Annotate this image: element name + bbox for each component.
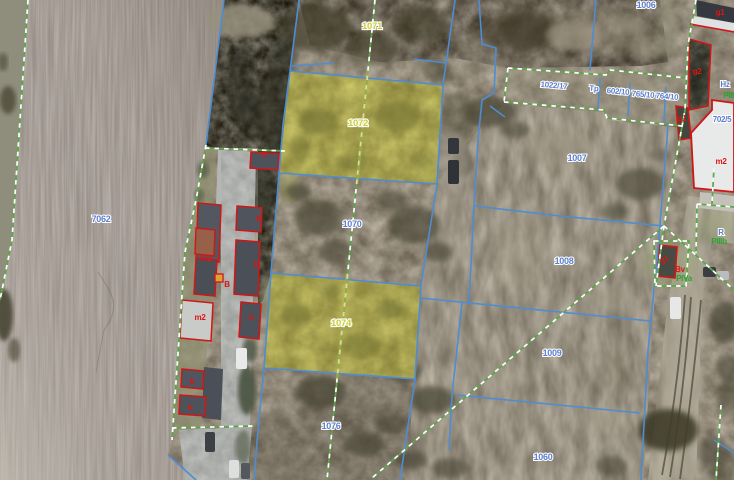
- svg-text:Hz: Hz: [720, 80, 729, 89]
- svg-text:1007: 1007: [568, 153, 587, 163]
- svg-text:1072: 1072: [348, 118, 368, 129]
- svg-text:m2: m2: [195, 313, 207, 322]
- svg-text:m2: m2: [201, 254, 213, 263]
- svg-text:b: b: [249, 313, 254, 322]
- svg-text:1074: 1074: [331, 318, 352, 329]
- svg-text:g1: g1: [678, 114, 688, 123]
- svg-text:7062: 7062: [92, 214, 111, 224]
- svg-text:1070: 1070: [343, 219, 362, 229]
- svg-text:g1: g1: [716, 8, 726, 17]
- svg-text:g2: g2: [693, 67, 703, 76]
- svg-text:b: b: [256, 214, 261, 223]
- svg-text:1071: 1071: [362, 21, 383, 32]
- svg-text:PIIIb: PIIIb: [711, 237, 727, 246]
- svg-text:1060: 1060: [534, 452, 553, 462]
- svg-text:PIVa: PIVa: [676, 274, 693, 283]
- svg-text:Bv: Bv: [675, 265, 685, 274]
- svg-text:B: B: [224, 280, 230, 289]
- svg-text:Tp: Tp: [589, 84, 599, 94]
- svg-text:b: b: [188, 403, 193, 412]
- svg-text:b: b: [190, 377, 195, 386]
- svg-text:m2: m2: [716, 157, 728, 166]
- svg-text:b: b: [262, 150, 267, 159]
- svg-text:PIIIb: PIIIb: [723, 91, 734, 100]
- svg-text:1008: 1008: [555, 256, 574, 266]
- svg-text:R: R: [718, 228, 724, 237]
- svg-text:702/5: 702/5: [713, 115, 732, 124]
- svg-text:1076: 1076: [322, 421, 341, 431]
- svg-text:1006: 1006: [637, 0, 656, 10]
- svg-text:b: b: [254, 260, 259, 269]
- svg-text:1009: 1009: [543, 348, 562, 358]
